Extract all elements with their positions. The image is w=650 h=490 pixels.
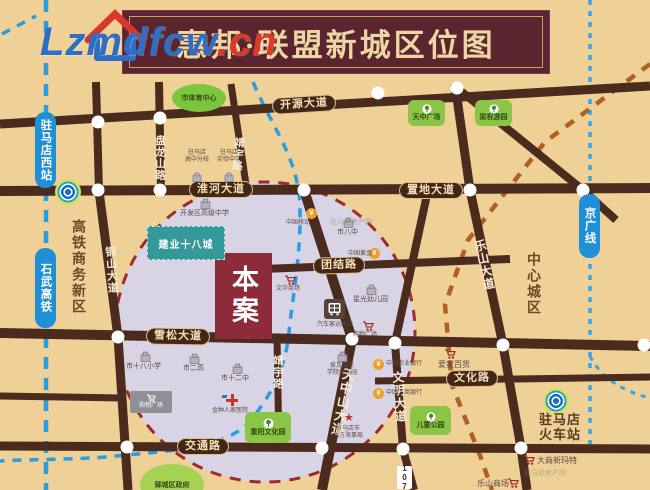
china-mobile-icon: ¥ xyxy=(306,208,317,219)
icbc-bank-icon: ¥ xyxy=(373,388,384,399)
shop-gray-mall: 购物广场 xyxy=(130,391,172,413)
hospital-cross-icon xyxy=(226,394,238,406)
park-label: 儿童公园 xyxy=(417,422,445,430)
park-label: 梁祝游园 xyxy=(480,114,508,122)
school-icon xyxy=(140,351,151,362)
shop-plaza: 购物广场 xyxy=(353,332,377,339)
road-label-zhidi-avenue: 置地大道 xyxy=(399,182,463,199)
park-tianzhong-plaza: 天中广场 xyxy=(408,100,445,126)
bus-glyph xyxy=(327,302,342,316)
poi-china-gold: 中国黄金 xyxy=(348,251,372,258)
poi-maritime-bureau: 驻马店市 地方海事局 xyxy=(326,426,370,440)
shop-aijia-department: 爱家百货 xyxy=(438,360,470,369)
school-city-no2-high: 市二高 xyxy=(183,365,204,373)
park-label: 重阳文化园 xyxy=(251,429,286,437)
cart-icon xyxy=(444,349,456,360)
tree-icon xyxy=(489,104,499,114)
maritime-bureau-star-icon: ★ xyxy=(344,413,354,424)
tree-icon xyxy=(426,412,436,422)
school-city-no18-primary: 市十八小学 xyxy=(126,363,161,371)
poi-sports-center: 市体育中心 xyxy=(172,84,226,112)
hospital-marker-accent xyxy=(221,395,227,398)
poi-hospital: 金种人家医院 xyxy=(212,408,248,415)
railway-station-target-icon xyxy=(543,388,569,414)
park-chongyang-culture: 重阳文化园 xyxy=(245,412,291,443)
road-label-tuanjie-road: 团结路 xyxy=(313,256,365,274)
shop-wenhua-mall: 文华商场 xyxy=(276,286,300,293)
cart-icon xyxy=(507,478,519,489)
tree-icon xyxy=(422,104,432,114)
tree-icon xyxy=(263,418,274,429)
cart-icon xyxy=(362,321,374,332)
road-label-jingyu-road-south: 靖宇路 xyxy=(271,349,286,395)
school-zhumadian-experimental: 驻马店 实验中学 xyxy=(213,150,245,164)
rail-pill-shiwu-hsr: 石武高铁 xyxy=(35,248,56,328)
road-label-wenhua-road: 文化路 xyxy=(446,370,498,388)
watermark-domain: Lzmdfcw xyxy=(40,20,217,64)
road-badge-g107: 107 xyxy=(397,466,412,489)
park-children: 儿童公园 xyxy=(410,406,451,435)
school-kaifaqu-senior-high: 开发区高级中学 xyxy=(180,210,229,218)
poi-west-bus-station: 汽车客运西站 xyxy=(317,322,353,329)
project-site-block: 本案 xyxy=(215,253,272,339)
school-city-no8-middle: 市八中 xyxy=(337,229,358,237)
road-label-xuesong-avenue: 雪松大道 xyxy=(146,327,210,345)
railway-station-name: 驻马店火车站 xyxy=(525,412,595,442)
railway-station-line2: 火车站 xyxy=(539,427,581,442)
jianye-18-city-block: 建业十八城 xyxy=(147,226,225,260)
area-label-central-city: 中心城区 xyxy=(524,252,544,328)
bus-station-icon xyxy=(324,299,345,319)
railway-station-line1: 驻马店 xyxy=(539,412,581,427)
faint-watermark: 驻马店房产网 xyxy=(330,219,372,227)
cart-icon xyxy=(145,394,157,403)
cart-icon xyxy=(523,455,535,466)
school-icon xyxy=(337,351,348,362)
project-site-label: 本案 xyxy=(224,265,263,327)
road-label-jiaotong-road: 交通路 xyxy=(177,438,229,455)
west-station-target-icon xyxy=(55,179,81,205)
watermark-cn: .cn xyxy=(217,20,278,64)
school-icon xyxy=(200,198,211,209)
school-xingguang-kindergarten: 星光幼儿园 xyxy=(353,296,388,304)
school-icon xyxy=(232,363,243,374)
road-label-huaihe-avenue: 淮河大道 xyxy=(189,181,253,198)
poi-agricultural-bank: 中国农业银行 xyxy=(386,361,422,368)
location-map: 惠邦·联盟新城区位图 Lzmdfcw.cn 开源大道 淮河大道 置地大道 团结路… xyxy=(0,0,650,490)
cart-icon xyxy=(284,275,296,286)
park-liangzhu-garden: 梁祝游园 xyxy=(475,100,512,126)
school-icon xyxy=(224,172,234,182)
school-city-no12-middle: 市十二中 xyxy=(221,375,249,383)
park-label: 天中广场 xyxy=(413,114,441,122)
station-pill-zhumadian-west: 驻马店西站 xyxy=(35,112,56,188)
watermark-text: Lzmdfcw.cn xyxy=(40,20,277,65)
school-zhumadian-hs-branch: 驻马店 高中分校 xyxy=(181,150,213,164)
agricultural-bank-icon: ¥ xyxy=(373,359,384,370)
shop-leshan-mall: 乐山商场 xyxy=(477,479,509,488)
school-icon xyxy=(366,284,377,295)
shop-dashang-newmart: 大商新玛特 xyxy=(537,456,577,465)
shop-label: 购物广场 xyxy=(139,403,163,410)
school-icon xyxy=(192,172,202,182)
area-label-hsr-business-district: 高铁商务新区 xyxy=(69,219,89,323)
road-label-panlongshan-road: 盘龙山路 xyxy=(153,128,168,188)
rail-pill-jingguang-line: 京广线 xyxy=(579,194,600,258)
poi-china-mobile: 中国移动 xyxy=(286,220,310,227)
faint-watermark: 驻马店房产网 xyxy=(524,470,566,478)
school-icon xyxy=(189,353,200,364)
school-academy-kindergarten: 爱克莱斯 学院幼儿园 xyxy=(321,363,363,377)
poi-icbc-bank: 中国工商银行 xyxy=(386,390,422,397)
